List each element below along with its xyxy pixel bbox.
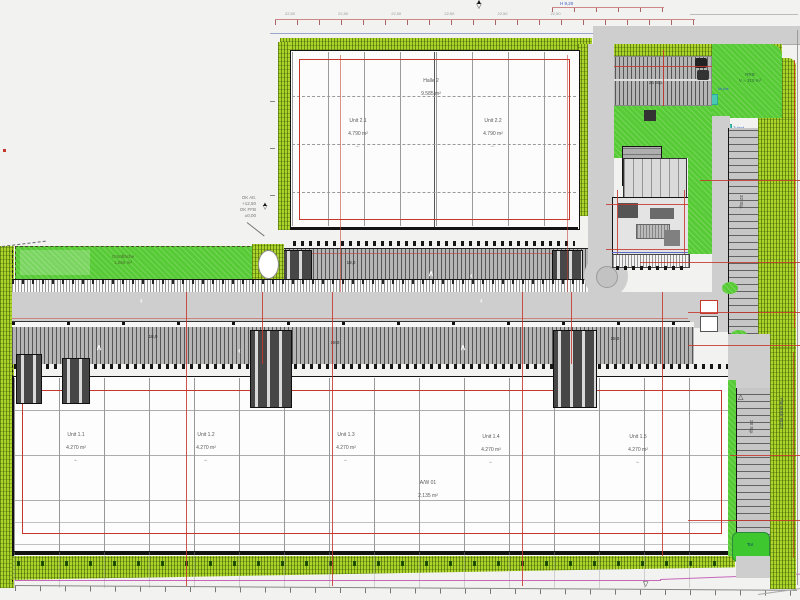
- dimension-chain-top-2: [552, 7, 664, 12]
- entrance-arrow-icon: ←: [74, 457, 79, 463]
- lower-unit-5-label: Unit 1.5 4.270 m² ←: [612, 428, 664, 466]
- east-edge-hedge-main: [758, 118, 796, 348]
- upper-unit-2-label: Unit 2.2 4.790 m² ←: [467, 112, 519, 150]
- traffic-arrow-icon: ∧: [460, 344, 466, 352]
- red-axis-upper-hall-2: [567, 55, 568, 292]
- unit-name: Unit 2.1: [349, 118, 366, 124]
- office-core-1: [618, 203, 638, 218]
- annex-building: [623, 158, 687, 198]
- parking-north-label: 26 Stp.: [638, 80, 674, 86]
- upper-hall-dock-doors: [293, 241, 575, 248]
- office-core-3: [664, 230, 680, 246]
- lower-unit-2-label: Unit 1.2 4.270 m² ←: [180, 426, 232, 464]
- red-axis-parking-v: [663, 50, 664, 110]
- lower-hall-center-note: A/W 01 2.135 m²: [402, 474, 454, 499]
- survey-point: [3, 149, 6, 152]
- height-note: H 9,20: [560, 1, 600, 7]
- survey-diamond-icon: ▲ ▽: [260, 204, 270, 218]
- red-axis-v4: [662, 292, 663, 556]
- red-axis-h4: [688, 345, 800, 346]
- parcel-note: Flurstück 842/3: [778, 398, 784, 429]
- upper-hall-hedge-top: [280, 38, 592, 50]
- entrance-arrow-icon: ←: [204, 457, 209, 463]
- red-axis-h2: [640, 262, 800, 263]
- upper-hall-south-wall: [290, 227, 578, 229]
- car-icon: [697, 70, 709, 80]
- north-road: [593, 26, 800, 45]
- gate-label: Tor: [736, 542, 764, 548]
- red-axis-v3: [522, 292, 523, 586]
- red-axis-h1: [700, 180, 800, 181]
- upper-hall-hedge-left: [278, 42, 290, 230]
- lawn-label: Grünfläche 1.050 m²: [95, 254, 151, 266]
- red-dim-east-upper: [794, 60, 795, 328]
- lower-unit-1-label: Unit 1.1 4.270 m² ←: [50, 426, 102, 464]
- bush: [722, 282, 738, 294]
- unit-name: Unit 1.5: [629, 434, 646, 440]
- red-axis-upper-hall-1: [340, 55, 341, 292]
- red-axis-parking: [602, 66, 712, 67]
- unit-area: 4.270 m²: [196, 445, 216, 451]
- dock-ramp-4: [553, 330, 597, 408]
- level-annotation-stack: OK Att. +12,50 OK FFB ±0,00: [222, 195, 256, 218]
- entrance-arrow-icon: ←: [491, 143, 496, 149]
- dimension-line-gray: [690, 14, 798, 15]
- lower-unit-4-label: Unit 1.4 4.270 m² ←: [465, 428, 517, 466]
- parking-strip-east: [728, 128, 759, 334]
- warning-triangle-icon: △: [738, 394, 743, 401]
- red-axis-v1: [186, 292, 187, 586]
- traffic-arrow-icon: ∧: [96, 344, 102, 352]
- office-axis-h2: [606, 249, 698, 250]
- unit-name: Unit 2.2: [484, 118, 501, 124]
- red-axis-h3: [688, 312, 800, 313]
- north-arrow-bottom: ▽: [476, 3, 481, 10]
- red-axis-v6: [571, 292, 572, 364]
- unit-name: Unit 1.3: [337, 432, 354, 438]
- sprinkler-tank: [258, 250, 279, 279]
- aisle-red-line: [12, 318, 688, 319]
- traffic-arrow-icon: ‹: [238, 347, 241, 355]
- road-stub-south: [736, 556, 770, 578]
- traffic-arrow-icon: ‹: [140, 297, 143, 305]
- unit-area: 4.270 m²: [66, 445, 86, 451]
- level-flag-icon: ▽: [643, 581, 648, 588]
- court-mark-2: 18,0: [320, 340, 350, 346]
- dock-ramp-2: [62, 358, 90, 404]
- unit-name: Unit 1.1: [67, 432, 84, 438]
- office-east-green: [688, 150, 712, 254]
- lawn-light-patch: [20, 250, 90, 275]
- office-core-2: [650, 208, 674, 219]
- swale-tag-1: Mulde: [718, 86, 744, 91]
- east-boundary-line: [797, 30, 798, 585]
- unit-area: 4.270 m²: [336, 445, 356, 451]
- green-sliver-east: [728, 380, 736, 556]
- traffic-arrow-icon: ‹: [480, 297, 483, 305]
- note-name: A/W 01: [420, 480, 436, 486]
- canopy-ticks: [12, 280, 592, 284]
- dimension-chain-top: [275, 19, 695, 25]
- diamond-bottom: ▽: [263, 205, 268, 211]
- grid-extension-south: [14, 552, 728, 588]
- office-blue-line: [612, 252, 688, 253]
- left-dim-ticks-upper-hall: [270, 55, 275, 196]
- dock-edge-posts: [12, 322, 690, 325]
- office-dock-ticks: [616, 266, 686, 272]
- unit-area: 4.790 m²: [483, 131, 503, 137]
- utility-block: [644, 110, 656, 121]
- red-axis-h5: [730, 455, 800, 456]
- court-mark-3: 18,0: [600, 336, 630, 342]
- traffic-arrow-icon: ∧: [428, 270, 434, 278]
- upper-court-red-line: [290, 253, 578, 254]
- dock-ramp-3: [250, 330, 292, 408]
- lower-hall-grid-h5: [14, 544, 728, 545]
- red-axis-h6: [688, 520, 800, 521]
- leader-line: [247, 222, 265, 236]
- gatehouse-box-2: [700, 316, 718, 332]
- north-arrow-icon: ▲ ▽: [473, 1, 485, 19]
- boundary-magenta-1: [15, 580, 661, 581]
- unit-name: Unit 1.4: [482, 434, 499, 440]
- parking-strip-southeast: [736, 388, 771, 556]
- office-axis-h1: [606, 204, 698, 205]
- cul-de-sac-island: [596, 266, 618, 288]
- upper-hall-name: Halle 2: [423, 78, 439, 84]
- upper-hall-center-label: Halle 2 9.585 m²: [405, 72, 457, 97]
- pond-label: RRB V = 310 m³: [730, 72, 770, 84]
- site-plan-canvas: 22,50 22,50 22,50 22,50 22,50 22,50 H 9,…: [0, 0, 800, 600]
- unit-area: 4.270 m²: [481, 447, 501, 453]
- unit-area: 4.270 m²: [628, 447, 648, 453]
- dock-ramp-1: [16, 354, 42, 404]
- entrance-arrow-icon: ←: [489, 459, 494, 465]
- unit-area: 4.790 m²: [348, 131, 368, 137]
- unit-name: Unit 1.2: [197, 432, 214, 438]
- red-axis-v5: [262, 292, 263, 364]
- lower-unit-3-label: Unit 1.3 4.270 m² ←: [320, 426, 372, 464]
- parking-east-label: 32 Stp.: [738, 195, 744, 209]
- entrance-arrow-icon: ←: [636, 459, 641, 465]
- note-area: 2.135 m²: [418, 493, 438, 499]
- entrance-arrow-icon: ←: [356, 143, 361, 149]
- parking-southeast-label: 28 Stp.: [748, 420, 754, 434]
- court-mark-1: 18,0: [138, 334, 168, 340]
- upper-hall-area: 9.585 m²: [421, 91, 441, 97]
- lower-hall-dock-doors: [14, 364, 728, 372]
- red-axis-v2: [332, 292, 333, 586]
- entrance-arrow-icon: ←: [344, 457, 349, 463]
